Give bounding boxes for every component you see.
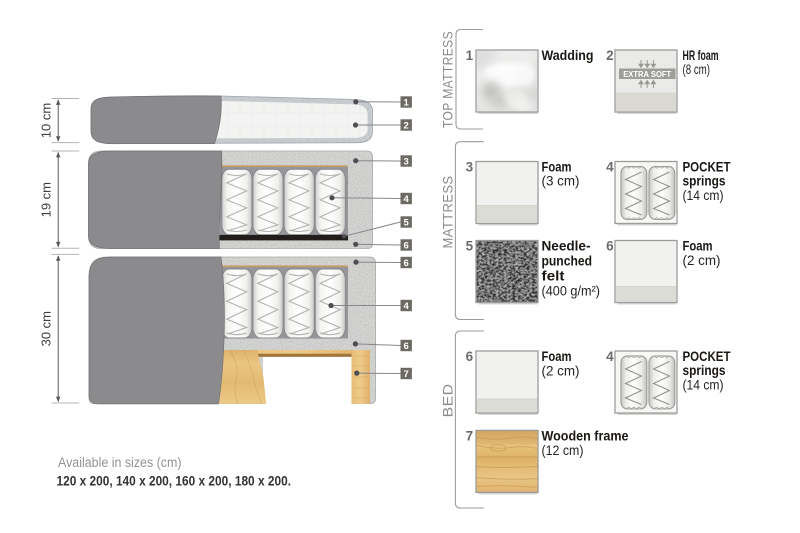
svg-text:MATTRESS: MATTRESS: [441, 176, 456, 249]
svg-text:30 cm: 30 cm: [39, 311, 54, 346]
svg-text:19 cm: 19 cm: [39, 182, 54, 217]
svg-text:Foam: Foam: [683, 239, 713, 254]
svg-text:(12 cm): (12 cm): [542, 443, 584, 458]
svg-text:(2 cm): (2 cm): [542, 364, 580, 379]
svg-text:6: 6: [466, 349, 474, 364]
svg-text:EXTRA SOFT: EXTRA SOFT: [623, 69, 672, 79]
svg-text:(400 g/m²): (400 g/m²): [542, 284, 601, 299]
svg-text:120 x 200, 140 x 200, 160 x 20: 120 x 200, 140 x 200, 160 x 200, 180 x 2…: [57, 474, 292, 489]
svg-text:punched: punched: [542, 254, 593, 269]
svg-text:4: 4: [606, 349, 614, 364]
svg-text:3: 3: [404, 157, 409, 168]
svg-text:(8 cm): (8 cm): [683, 62, 711, 77]
svg-text:(3 cm): (3 cm): [542, 174, 580, 189]
svg-text:1: 1: [404, 98, 410, 109]
svg-text:6: 6: [606, 239, 614, 254]
svg-text:2: 2: [404, 121, 409, 132]
svg-text:2: 2: [606, 48, 614, 63]
svg-text:Wadding: Wadding: [542, 48, 594, 63]
svg-text:springs: springs: [683, 363, 726, 378]
svg-text:BED: BED: [441, 383, 456, 417]
svg-text:4: 4: [404, 194, 410, 205]
svg-text:7: 7: [466, 429, 474, 444]
svg-text:5: 5: [404, 218, 410, 229]
svg-text:felt: felt: [542, 269, 566, 284]
svg-text:5: 5: [466, 239, 474, 254]
svg-text:POCKET: POCKET: [683, 349, 732, 364]
svg-text:Foam: Foam: [542, 160, 572, 175]
svg-text:6: 6: [404, 341, 409, 352]
svg-text:(14 cm): (14 cm): [683, 378, 724, 393]
svg-text:3: 3: [466, 160, 474, 175]
svg-text:(14 cm): (14 cm): [683, 188, 724, 203]
svg-text:Wooden frame: Wooden frame: [542, 428, 629, 443]
svg-text:(2 cm): (2 cm): [683, 253, 721, 268]
svg-text:Foam: Foam: [542, 349, 572, 364]
svg-text:springs: springs: [683, 174, 726, 189]
svg-text:6: 6: [404, 241, 409, 252]
svg-text:10 cm: 10 cm: [39, 103, 54, 138]
svg-text:4: 4: [404, 301, 410, 312]
svg-text:4: 4: [606, 160, 614, 175]
svg-text:HR foam: HR foam: [683, 48, 719, 63]
svg-text:POCKET: POCKET: [683, 160, 732, 175]
svg-text:Needle-: Needle-: [542, 239, 591, 254]
svg-text:Available in sizes (cm): Available in sizes (cm): [58, 455, 182, 470]
svg-text:1: 1: [466, 48, 474, 63]
svg-text:TOP MATTRESS: TOP MATTRESS: [441, 31, 456, 128]
svg-text:7: 7: [404, 369, 409, 380]
svg-text:6: 6: [404, 258, 409, 269]
